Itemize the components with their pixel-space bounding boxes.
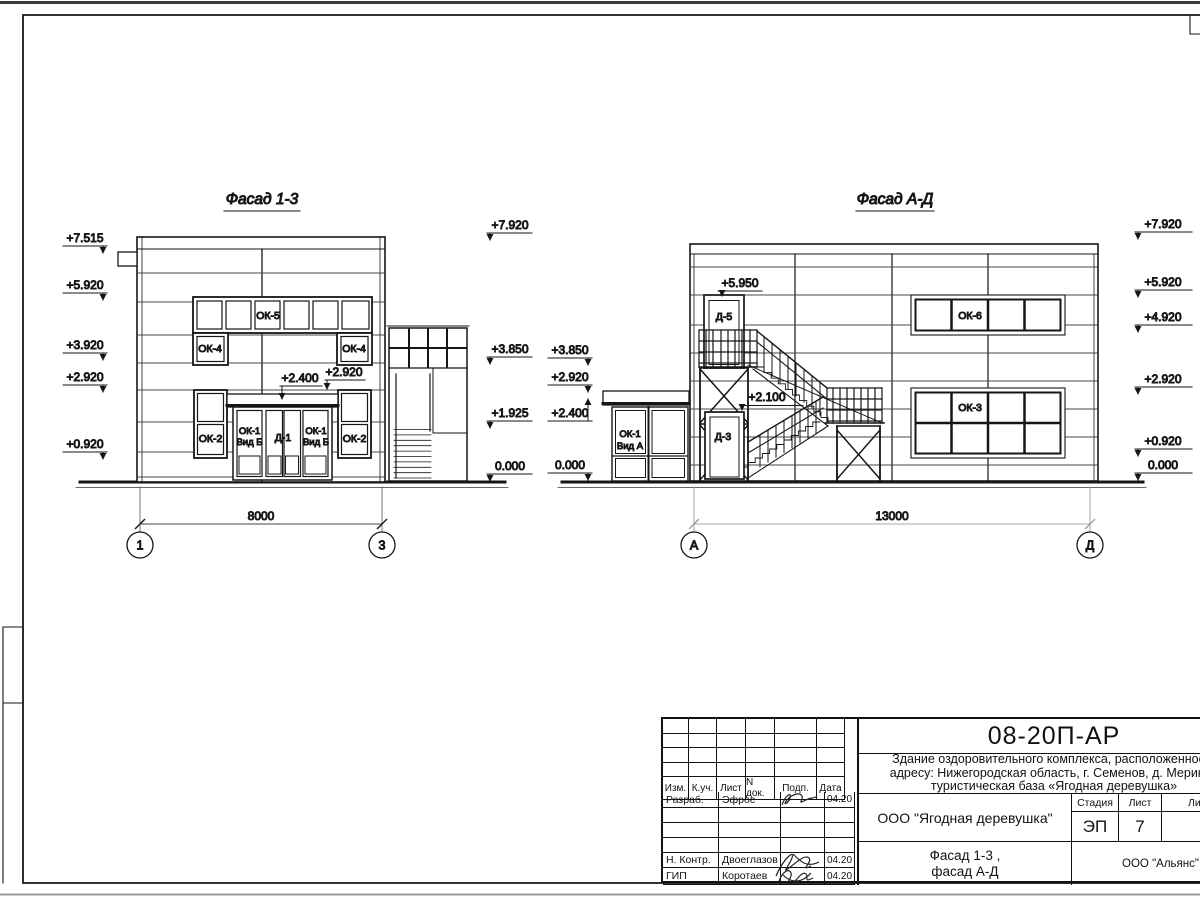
signature-cell [781, 792, 825, 808]
drawing-title-line: Фасад 1-3 , [859, 848, 1071, 864]
label-ok3: ОК-3 [958, 402, 982, 414]
label-d1: Д-1 [275, 432, 292, 444]
signature-cell [781, 868, 825, 885]
contractor-name: ООО "Альянс" [1072, 842, 1200, 885]
svg-text:3: 3 [379, 539, 386, 553]
staff-rows: Разраб. Эфрос 04.20 Н. Контр. Двоеглазов… [663, 792, 857, 885]
label-ok1: ОК-1 [619, 429, 640, 440]
signature-cell [781, 853, 825, 868]
project-line: Здание оздоровительного комплекса, распо… [859, 753, 1200, 767]
dimension-8000: 8000 [136, 487, 387, 531]
axis-bubble-3: 3 [369, 532, 395, 558]
name: Коротаев [719, 868, 781, 885]
label-ok5: ОК-5 [256, 310, 280, 322]
date: 04.20 [825, 868, 855, 885]
svg-text:+0.920: +0.920 [66, 437, 103, 451]
svg-text:+2.400: +2.400 [281, 371, 318, 385]
elevation-marks-left: +3.850 +2.920 +2.400 0.000 [548, 343, 592, 480]
label-ok4: ОК-4 [342, 343, 366, 355]
staff-row: Разраб. Эфрос 04.20 [663, 792, 857, 808]
elevation-marks-right: +7.920 +3.850 +1.925 0.000 [487, 218, 532, 481]
drawing-sheet: { "colors": {"line": "#161616", "siding"… [0, 0, 1200, 900]
svg-text:+1.925: +1.925 [491, 406, 528, 420]
stage-label: Стадия [1072, 794, 1119, 812]
date: 04.20 [825, 853, 855, 868]
role: ГИП [663, 868, 719, 885]
door-d5: Д-5 [704, 295, 744, 368]
date: 04.20 [825, 792, 855, 808]
facade-1-3-title: Фасад 1-3 [226, 191, 299, 208]
svg-text:8000: 8000 [248, 509, 275, 523]
svg-text:1: 1 [137, 539, 144, 553]
svg-text:А: А [690, 539, 699, 553]
svg-text:+2.920: +2.920 [66, 370, 103, 384]
sheet-value: 7 [1119, 812, 1162, 842]
facade-a-d-title: Фасад А-Д [857, 191, 934, 208]
svg-text:+3.850: +3.850 [551, 343, 588, 357]
stage-value: ЭП [1072, 812, 1119, 842]
sheets-value [1162, 812, 1200, 842]
svg-text:+5.950: +5.950 [721, 276, 758, 290]
axis-bubble-a: А [681, 532, 707, 558]
client-name: ООО "Ягодная деревушка" [859, 794, 1072, 842]
titleblock-header-row: Изм. К.уч. Лист N док. Подп. Дата [663, 777, 857, 792]
svg-text:Д: Д [1086, 539, 1095, 553]
svg-text:+5.920: +5.920 [1144, 275, 1181, 289]
elevation-marks-left: +7.515 +5.920 +3.920 +2.920 +0.920 [63, 231, 107, 459]
role: Разраб. [663, 792, 719, 808]
window-ok2-right: ОК-2 [338, 390, 371, 458]
svg-text:0.000: 0.000 [495, 459, 525, 473]
svg-text:+0.920: +0.920 [1144, 434, 1181, 448]
staff-row: Н. Контр. Двоеглазов 04.20 [663, 853, 857, 868]
entrance: ОК-1 Вид Б Д-1 ОК-1 Вид Б [227, 394, 338, 480]
drawing-title: Фасад 1-3 , фасад А-Д [859, 842, 1072, 885]
svg-text:+7.920: +7.920 [491, 218, 528, 232]
name: Двоеглазов [719, 853, 781, 868]
label-ok2: ОК-2 [343, 433, 367, 445]
svg-text:+7.920: +7.920 [1144, 217, 1181, 231]
svg-text:+2.920: +2.920 [551, 370, 588, 384]
svg-text:+2.920: +2.920 [1144, 372, 1181, 386]
label-ok6: ОК-6 [958, 310, 982, 322]
label-ok1: ОК-1 [305, 426, 326, 437]
role: Н. Контр. [663, 853, 719, 868]
svg-text:13000: 13000 [875, 509, 909, 523]
axis-bubble-d: Д [1077, 532, 1103, 558]
drawing-title-line: фасад А-Д [859, 864, 1071, 880]
staff-row [663, 808, 857, 823]
staff-row [663, 823, 857, 838]
project-line: туристическая база «Ягодная деревушка» [859, 780, 1200, 794]
stair-annex [387, 326, 469, 481]
revision-grid [663, 719, 857, 777]
window-ok6: ОК-6 [911, 295, 1065, 335]
stage-block: Стадия Лист Листов ЭП 7 [1072, 794, 1200, 842]
svg-text:+7.515: +7.515 [66, 231, 103, 245]
label-ok2: ОК-2 [199, 433, 223, 445]
title-block: Изм. К.уч. Лист N док. Подп. Дата Разраб… [661, 717, 1200, 883]
label-ok4: ОК-4 [198, 343, 222, 355]
svg-text:0.000: 0.000 [555, 458, 585, 472]
window-ok4-right: ОК-4 [337, 333, 372, 365]
elevation-marks-right: +7.920 +5.920 +4.920 +2.920 +0.920 0.000 [1135, 217, 1192, 480]
project-line: адресу: Нижегородская область, г. Семено… [859, 767, 1200, 781]
document-code: 08-20П-АР [859, 719, 1200, 754]
label-d3: Д-3 [715, 431, 732, 443]
axis-bubble-1: 1 [127, 532, 153, 558]
svg-text:+3.920: +3.920 [66, 338, 103, 352]
dimension-13000: 13000 [690, 487, 1095, 531]
svg-text:+2.100: +2.100 [748, 390, 785, 404]
svg-text:0.000: 0.000 [1148, 458, 1178, 472]
facade-1-3: Фасад 1-3 ОК-5 ОК-4 [63, 191, 532, 558]
window-ok4-left: ОК-4 [193, 333, 228, 365]
name: Эфрос [719, 792, 781, 808]
window-ok2-left: ОК-2 [194, 390, 227, 458]
label-ok1-view: Вид А [617, 441, 644, 452]
label-ok1-view: Вид Б [236, 437, 262, 448]
svg-text:+4.920: +4.920 [1144, 310, 1181, 324]
facade-a-d: Фасад А-Д ОК-6 ОК-3 [548, 191, 1192, 558]
vestibule-ok1: ОК-1 Вид А [603, 391, 689, 481]
titleblock-right: 08-20П-АР Здание оздоровительного компле… [857, 719, 1200, 885]
svg-text:+5.920: +5.920 [66, 278, 103, 292]
staff-row [663, 838, 857, 853]
label-d5: Д-5 [716, 311, 733, 323]
door-d3: Д-3 [705, 412, 744, 479]
label-ok1-view: Вид Б [303, 437, 329, 448]
sheet-label: Лист [1119, 794, 1162, 812]
sheets-label: Листов [1162, 794, 1200, 812]
staff-row: ГИП Коротаев 04.20 [663, 868, 857, 885]
svg-text:+2.400: +2.400 [551, 406, 588, 420]
svg-text:+2.920: +2.920 [325, 365, 362, 379]
window-ok5-band: ОК-5 [193, 297, 372, 333]
project-description: Здание оздоровительного комплекса, распо… [859, 754, 1200, 794]
window-ok3: ОК-3 [911, 388, 1065, 458]
label-ok1: ОК-1 [239, 426, 260, 437]
svg-text:+3.850: +3.850 [491, 342, 528, 356]
